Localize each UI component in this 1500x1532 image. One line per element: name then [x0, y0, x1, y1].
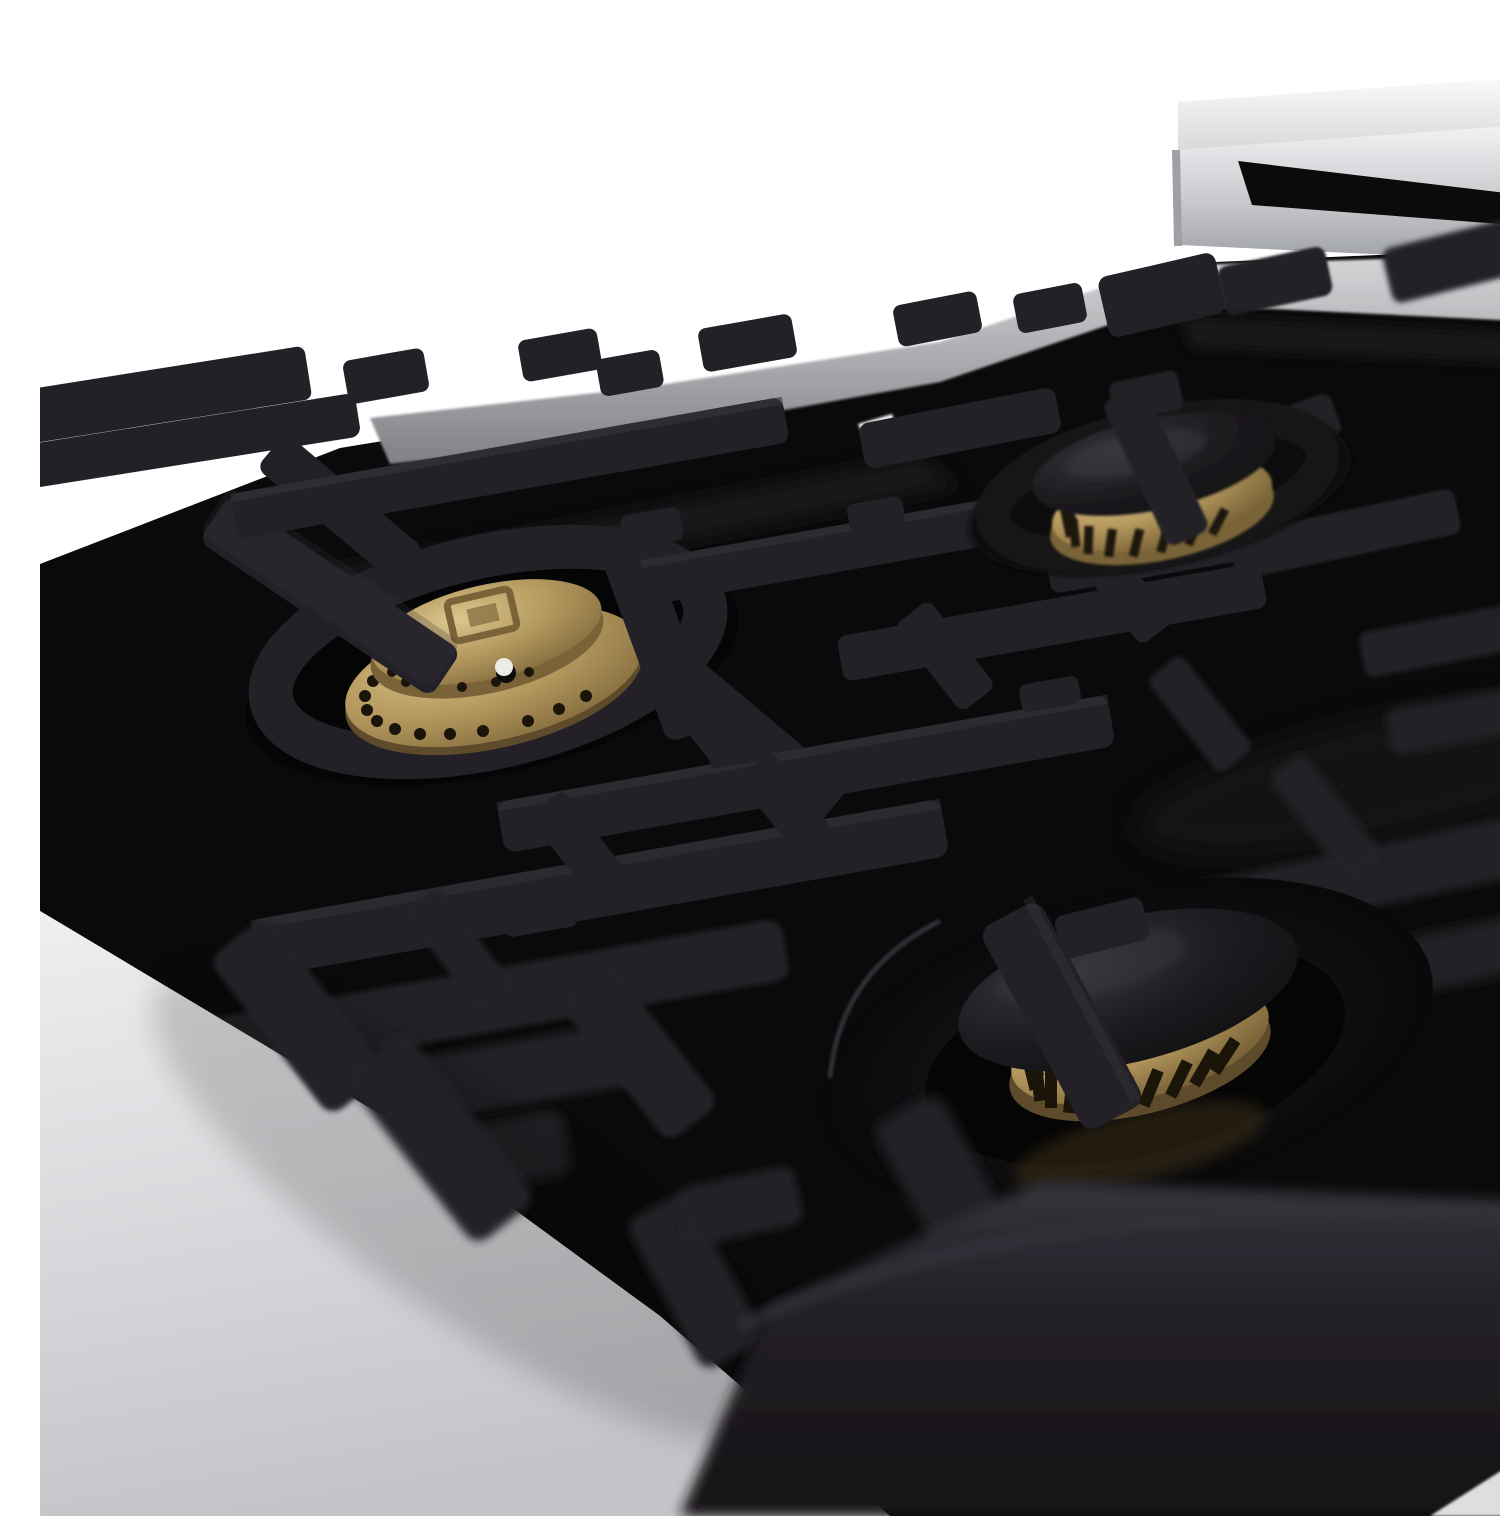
igniter-electrode	[495, 658, 513, 676]
gas-cooktop-product-photo: Angled close-up of a gas range cooktop: …	[40, 16, 1500, 1516]
cooktop-scene: product-photo	[40, 16, 1500, 1516]
